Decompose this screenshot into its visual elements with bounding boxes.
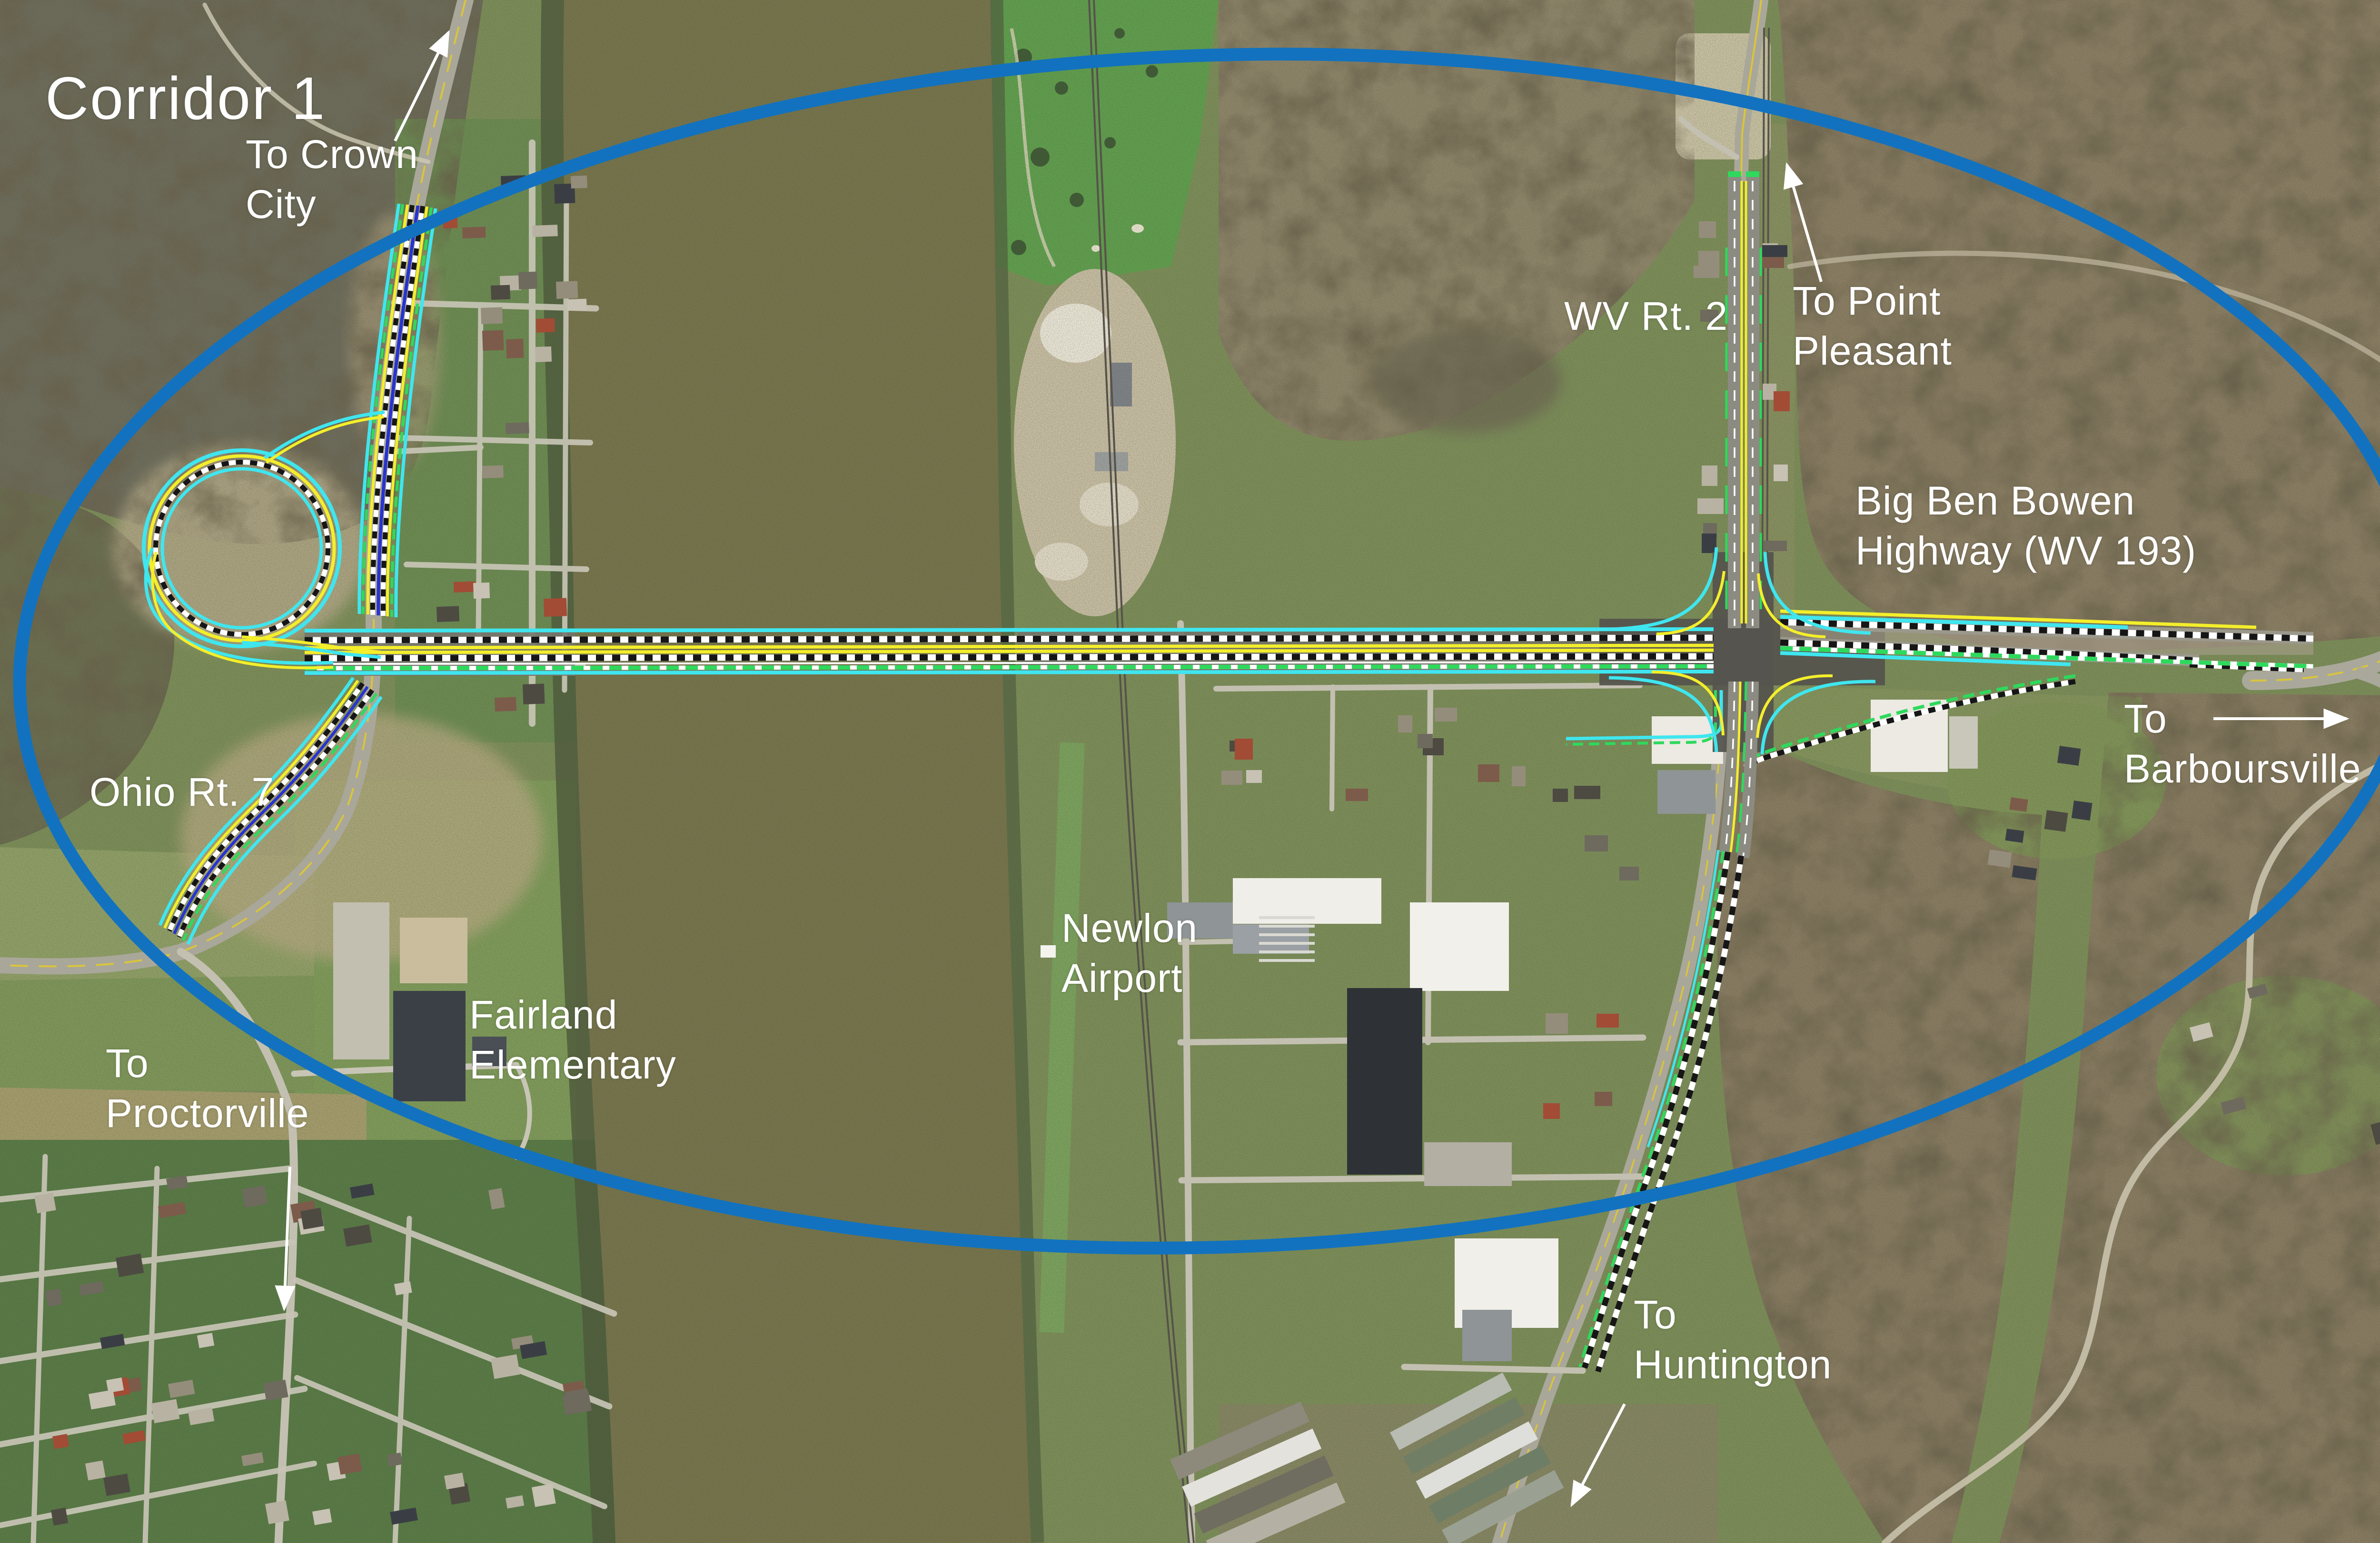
label-wv-rt-2: WV Rt. 2 [1564,291,1728,341]
house-roof [532,225,558,237]
house-roof [436,606,459,622]
house-roof [571,176,587,188]
house-roof [300,1208,324,1230]
house-roof [473,583,490,599]
house-roof [491,285,510,300]
house-roof [1543,1103,1560,1119]
house-roof [532,1484,556,1507]
house-roof [1694,266,1719,278]
house-roof [535,346,552,362]
house-roof [1346,789,1368,801]
house-roof [2005,829,2024,843]
house-roof [495,697,516,712]
house-roof [1246,770,1262,783]
house-roof [1988,850,2012,868]
house-roof [506,339,524,358]
house-roof [337,1454,362,1474]
house-roof [242,1186,268,1208]
house-roof [265,1500,289,1524]
house-roof [1595,1092,1612,1106]
house-roof [197,1333,214,1348]
house-roof [1235,739,1253,760]
house-roof [2072,801,2092,821]
house-roof [85,1461,106,1481]
fairland-elementary-building [400,918,467,983]
label-big-ben-bowen-highway: Big Ben Bowen Highway (WV 193) [1855,476,2196,576]
house-roof [536,318,555,333]
house-roof [1764,541,1787,551]
label-newlon-airport: Newlon Airport [1061,903,1198,1003]
corridor-map: Corridor 1 To Crown City WV Rt. 2 To Poi… [0,0,2380,1543]
house-roof [2044,810,2068,832]
house-roof [454,581,476,593]
house-roof [1597,1014,1619,1028]
house-roof [482,330,504,351]
house-roof [518,272,537,289]
house-roof [1398,715,1412,732]
house-roof [567,299,587,311]
house-roof [45,1289,62,1307]
satellite-canvas [0,0,2380,1543]
label-corridor-1: Corridor 1 [45,61,326,136]
newlon-airport-hangar [1041,945,1056,958]
house-roof [1774,465,1788,481]
house-roof [2009,797,2028,812]
fairland-elementary-parking [333,902,389,1059]
house-roof [51,1508,68,1526]
house-roof [482,465,504,478]
house-roof [544,598,567,617]
house-roof [387,1453,403,1467]
house-roof [556,281,578,299]
label-to-huntington: To Huntington [1634,1290,1832,1390]
house-roof [1418,734,1433,748]
house-roof [1698,251,1719,267]
house-roof [2057,746,2081,766]
house-roof [1619,867,1639,880]
house-roof [1574,786,1600,799]
house-roof [1697,498,1724,514]
label-to-point-pleasant: To Point Pleasant [1793,276,1952,376]
label-to-proctorville: To Proctorville [106,1039,309,1138]
house-roof [523,683,545,704]
label-to-barboursville: To Barboursville [2124,694,2361,794]
house-roof [1553,789,1568,802]
label-to-crown-city: To Crown City [246,129,418,229]
label-fairland-elementary: Fairland Elementary [469,990,676,1090]
house-roof [1546,1013,1568,1034]
label-ohio-rt-7: Ohio Rt. 7 [89,767,274,817]
house-roof [1762,245,1787,257]
house-roof [52,1434,69,1449]
house-roof [1221,771,1242,785]
house-roof [1702,465,1717,486]
house-roof [1699,221,1716,238]
house-roof [506,422,529,434]
house-roof [34,1193,56,1213]
house-roof [1774,391,1790,411]
house-roof [1585,835,1608,851]
house-roof [1702,534,1716,553]
house-roof [462,227,486,238]
house-roof [481,307,503,324]
house-roof [1435,708,1457,722]
house-roof [1478,764,1499,782]
house-roof [1512,766,1526,786]
